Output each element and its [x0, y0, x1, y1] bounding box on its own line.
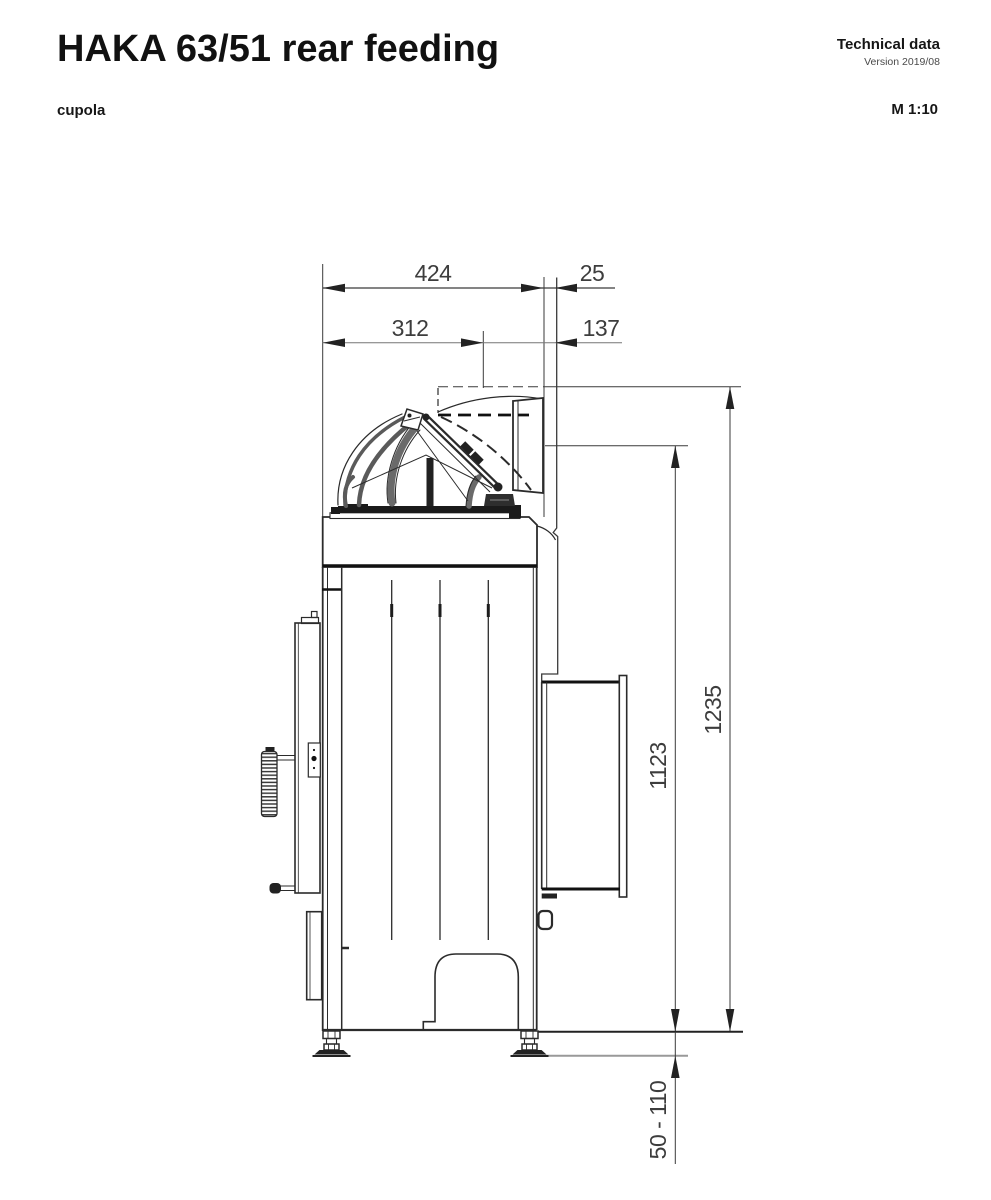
cupola-mechanism: [330, 388, 543, 519]
cupola-subplate: [330, 513, 520, 519]
rear-panel: [539, 676, 627, 930]
arrowhead: [323, 284, 345, 293]
head-box: [323, 517, 537, 567]
dim-1235-label: 1235: [700, 685, 726, 734]
machine-body: [262, 517, 627, 1056]
arrowhead: [671, 446, 680, 468]
top-pivot-bracket: [401, 409, 423, 430]
dim-1123-label: 1123: [645, 742, 671, 789]
arrowhead: [461, 338, 483, 347]
dim-424-label: 424: [415, 260, 453, 286]
dim-312-label: 312: [392, 315, 429, 341]
baseplate-end-right: [509, 505, 521, 518]
arrowhead: [671, 1056, 680, 1078]
door-handle: [262, 747, 296, 817]
adjustable-foot-left: [313, 1031, 351, 1056]
arrowhead: [555, 284, 577, 293]
cable-duct-curve: [537, 526, 556, 540]
arrowhead: [726, 387, 735, 409]
dim-foot-range-label: 50 - 110: [645, 1081, 671, 1160]
lower-side-panel: [307, 912, 322, 1000]
panel-grooves: [392, 580, 489, 940]
dim-137-label: 137: [583, 315, 620, 341]
datasheet-page: HAKA 63/51 rear feeding Technical data V…: [0, 0, 991, 1200]
door-latch: [308, 743, 320, 777]
arrowhead: [555, 338, 577, 347]
center-post: [427, 458, 434, 506]
baseplate-end-left: [331, 507, 340, 514]
adjustable-foot-right: [511, 1031, 549, 1056]
bottom-arch: [423, 954, 518, 1030]
arrowhead: [323, 338, 345, 347]
arrowhead: [671, 1009, 680, 1032]
arrowhead: [521, 284, 543, 293]
arrowhead: [726, 1009, 735, 1032]
lower-pin: [270, 883, 296, 894]
technical-drawing: 424 25 312 137 1235 1123: [0, 0, 991, 1200]
dim-25-label: 25: [580, 260, 605, 286]
